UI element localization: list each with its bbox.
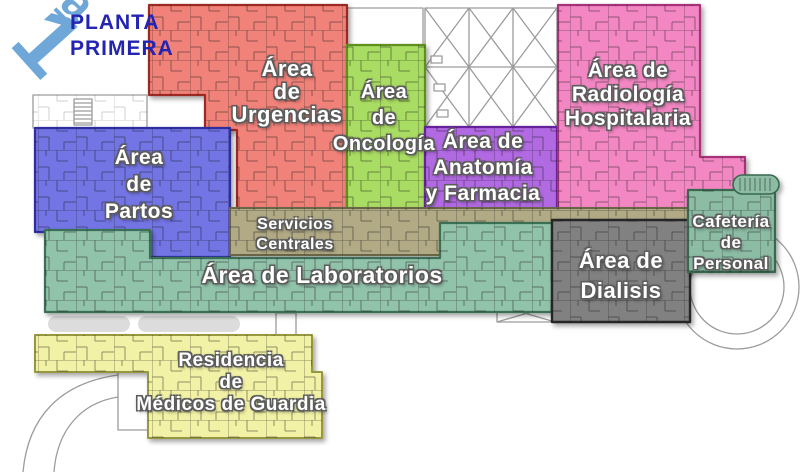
label-urgencias: Área de Urgencias: [232, 57, 343, 126]
plan-title: PLANTA PRIMERA: [70, 10, 174, 62]
plan-title-line2: PRIMERA: [70, 36, 174, 62]
label-laboratorios: Área de Laboratorios: [201, 263, 442, 287]
stairs-icon: [74, 99, 92, 125]
label-cafeteria: Cafetería de Personal: [692, 211, 769, 274]
label-servicios: Servicios Centrales: [256, 215, 333, 255]
label-oncologia: Área de Oncología: [333, 79, 435, 157]
corridor-band-left: [48, 316, 130, 332]
floorplan-page: 1 a PLANTA PRIMERA Área de Urgencias Áre…: [0, 0, 800, 473]
label-anatomia: Área de Anatomía y Farmacia: [426, 129, 541, 207]
corridor-band-right: [138, 316, 240, 332]
corridor-connector: [276, 313, 296, 337]
north-gap-outline: [345, 8, 423, 45]
label-partos: Área de Partos: [105, 144, 173, 225]
label-radiologia: Área de Radiología Hospitalaria: [565, 59, 691, 131]
cafeteria-stairs-lines: [740, 178, 770, 191]
label-residencia: Residencia de Médicos de Guardia: [136, 350, 326, 416]
plan-title-line1: PLANTA: [70, 10, 174, 36]
roof-skylight: [425, 8, 557, 127]
label-dialisis: Área de Dialisis: [579, 246, 663, 306]
